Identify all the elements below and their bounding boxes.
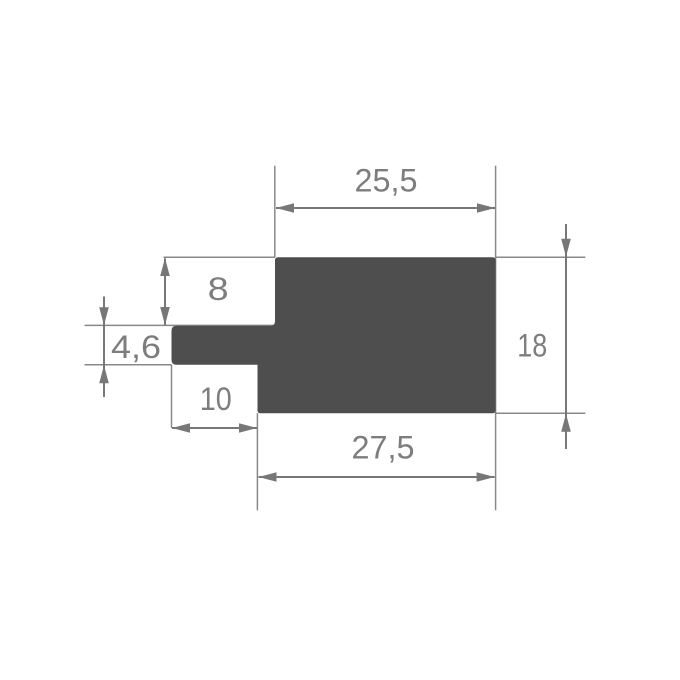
svg-text:27,5: 27,5 [352, 430, 415, 466]
svg-text:8: 8 [208, 271, 229, 307]
svg-text:25,5: 25,5 [355, 163, 418, 199]
svg-text:10: 10 [200, 381, 232, 417]
svg-text:4,6: 4,6 [111, 329, 161, 365]
svg-text:18: 18 [517, 328, 547, 364]
